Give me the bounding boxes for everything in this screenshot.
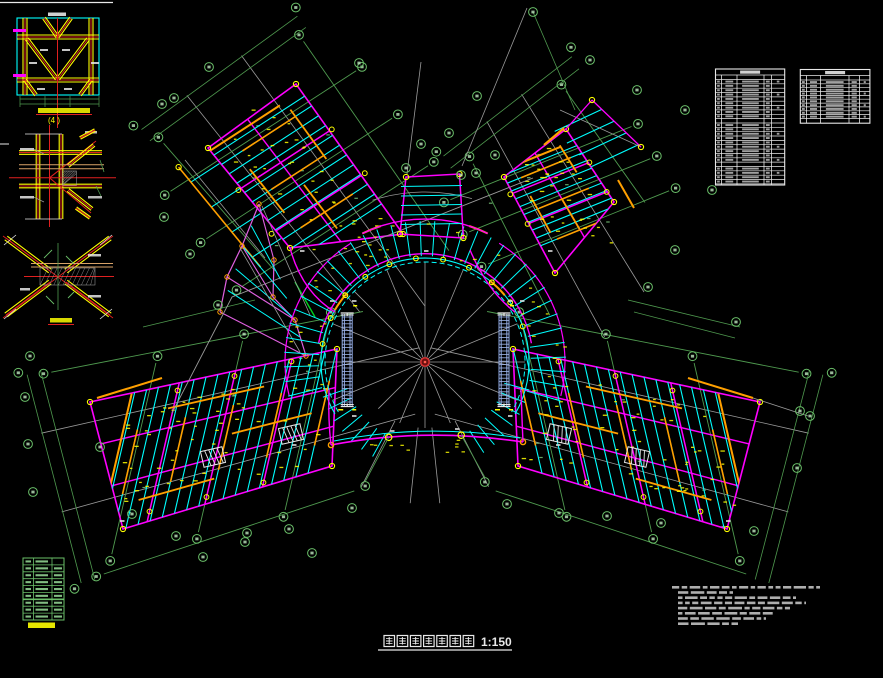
svg-text:1:150: 1:150 (481, 635, 512, 649)
svg-text:(4 ): (4 ) (48, 116, 60, 125)
